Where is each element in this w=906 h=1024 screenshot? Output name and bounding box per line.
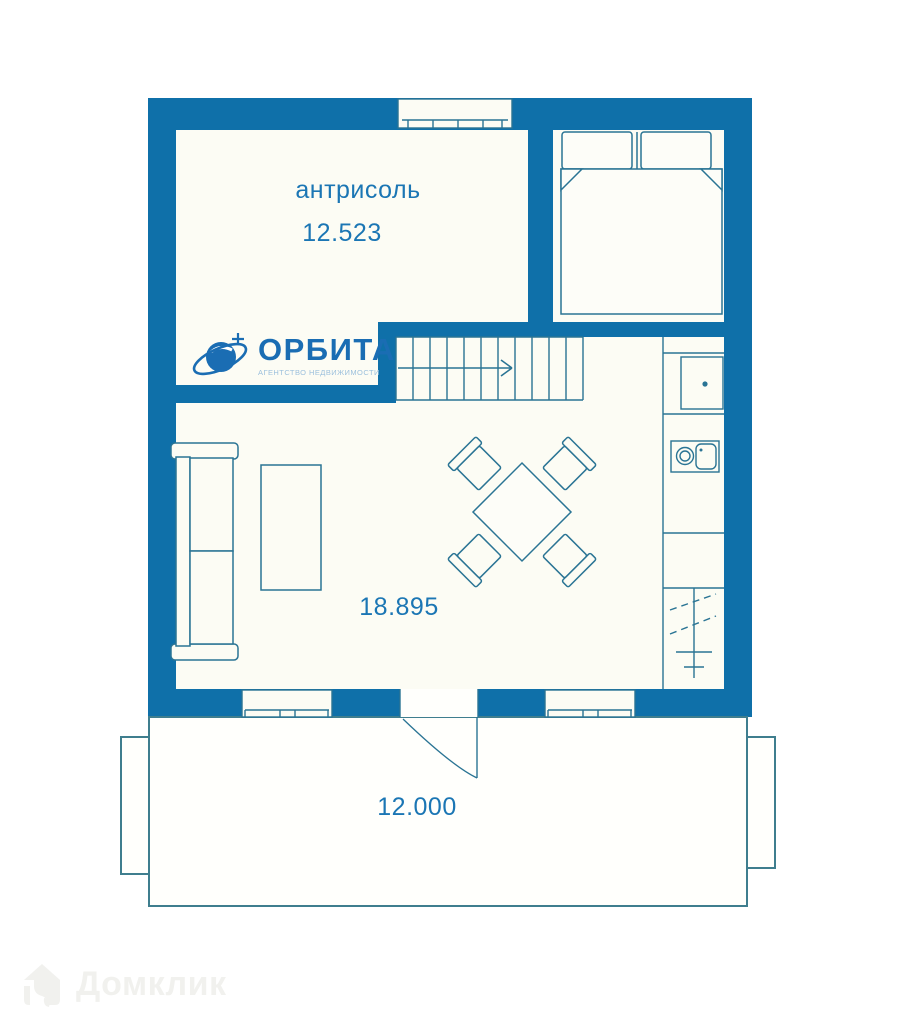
mezzanine-room-label: антрисоль xyxy=(258,178,458,203)
floorplan-image: антрисоль 12.523 18.895 12.000 ОРБИТА АГ… xyxy=(0,0,906,1024)
wall-mezzanine-bedroom-divider xyxy=(528,130,553,322)
bed-mattress xyxy=(561,169,722,314)
bed-pillow-left xyxy=(562,132,632,169)
coffee-table xyxy=(261,465,321,590)
window-bottom-left xyxy=(242,690,332,717)
orbita-logo: ОРБИТА АГЕНТСТВО НЕДВИЖИМОСТИ xyxy=(190,327,396,383)
terrace-step-left xyxy=(121,737,149,874)
wall-mezzanine-bottom xyxy=(148,385,396,403)
sofa-cushion-bottom xyxy=(190,551,233,644)
terrace-area-value: 12.000 xyxy=(357,795,477,820)
wall-right xyxy=(724,98,752,717)
wall-left xyxy=(148,98,176,717)
orbita-planet-icon xyxy=(190,327,252,383)
mezzanine-area-value: 12.523 xyxy=(282,221,402,246)
bed xyxy=(561,132,722,314)
wall-mid-horizontal-band xyxy=(378,322,752,337)
domklik-watermark-text: Домклик xyxy=(76,965,227,1004)
bed-pillow-right xyxy=(641,132,711,169)
orbita-logo-tagline: АГЕНТСТВО НЕДВИЖИМОСТИ xyxy=(258,368,396,377)
door-opening xyxy=(400,689,478,717)
floorplan-drawing xyxy=(0,0,906,1024)
orbita-logo-title: ОРБИТА xyxy=(258,334,396,365)
window-bottom-right xyxy=(545,690,635,717)
sofa-back xyxy=(176,457,190,646)
living-area-value: 18.895 xyxy=(339,595,459,620)
domklik-watermark: Домклик xyxy=(18,958,227,1010)
domklik-house-icon xyxy=(18,958,66,1010)
sofa-cushion-top xyxy=(190,458,233,551)
window-top xyxy=(398,99,512,128)
terrace-step-right xyxy=(747,737,775,868)
sofa xyxy=(171,443,238,660)
